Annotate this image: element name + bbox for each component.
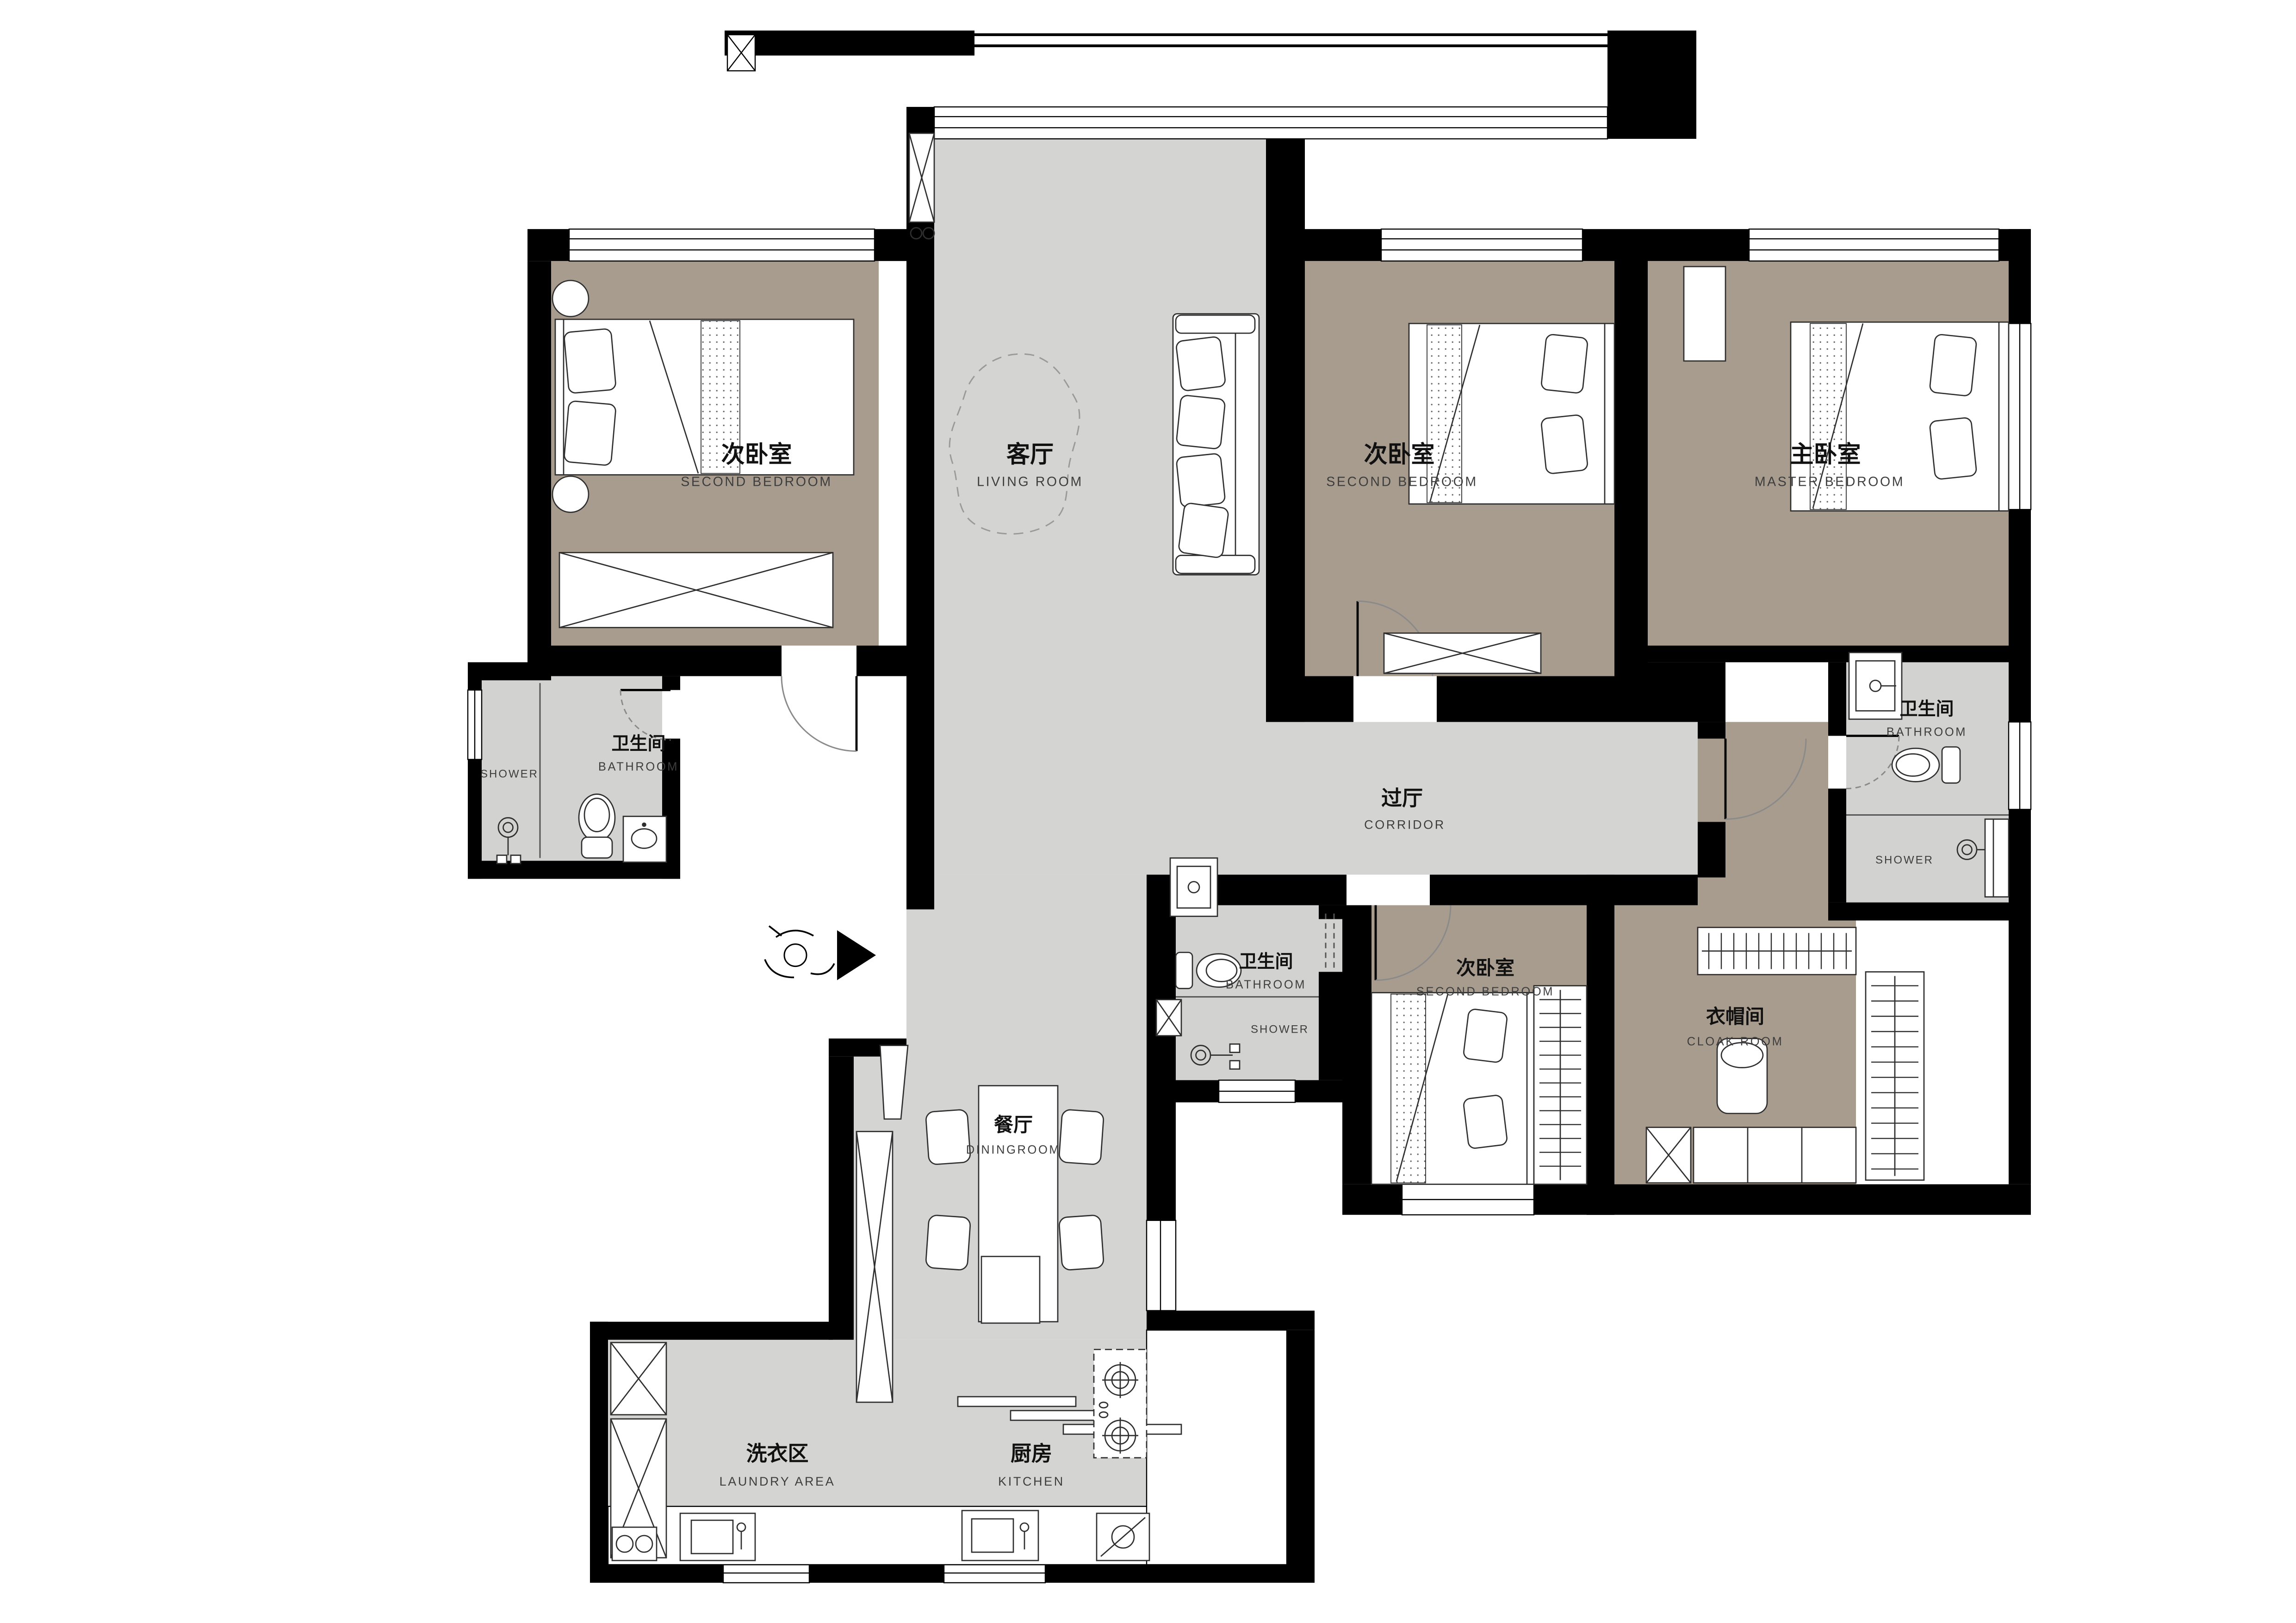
bathroom-center-label-cn: 卫生间 [1239, 952, 1293, 972]
cushion-icon [1176, 336, 1226, 391]
window-dining-east [1147, 1220, 1176, 1311]
hanger-rail-icon [1698, 928, 1856, 975]
living-room-label-en: LIVING ROOM [977, 474, 1083, 489]
stove-icon [1094, 1350, 1147, 1458]
entry-arrow-icon [837, 930, 876, 980]
wardrobe-icon [559, 552, 833, 627]
cushion-icon [1176, 453, 1226, 508]
window-bathroom-right-east [2009, 722, 2031, 809]
tall-cabinet-icon [856, 1132, 893, 1402]
window-second-bedroom-top [1381, 229, 1582, 261]
washing-machine-icon [611, 1343, 666, 1415]
hob-cabinet-icon [612, 1527, 657, 1561]
bed-icon [555, 319, 854, 475]
nightstand-icon [552, 476, 589, 512]
laundry-area-label-en: LAUNDRY AREA [720, 1474, 836, 1488]
chair-icon [925, 1109, 971, 1165]
person-icon [765, 926, 834, 978]
master-bedroom-label-en: MASTER BEDROOM [1755, 474, 1905, 489]
bathroom-right-label-en: BATHROOM [1886, 725, 1967, 738]
window-second-bedroom-bottom [1402, 1184, 1534, 1215]
door-second-bedroom-left [782, 676, 856, 751]
bathroom-center-label-en: BATHROOM [1226, 979, 1306, 991]
hanger-rail-icon [1866, 972, 1924, 1180]
sink-icon [623, 817, 666, 862]
bathroom-left-label-cn: 卫生间 [612, 734, 666, 754]
counter-east [1147, 1330, 1287, 1565]
sink-icon [1849, 652, 1902, 719]
window-kitchen-south-1 [723, 1565, 809, 1583]
window-bathroom-center-south [1219, 1080, 1295, 1103]
oven-icon [1097, 1513, 1149, 1561]
cloak-room-label-cn: 衣帽间 [1706, 1006, 1764, 1028]
window-second-bedroom-left [569, 229, 875, 261]
kitchen-sink-icon [962, 1511, 1038, 1561]
bathroom-center-shower-label: SHOWER [1251, 1023, 1309, 1036]
bed-icon [1371, 993, 1534, 1184]
window-master-bedroom-top [1749, 229, 1999, 261]
nightstand-icon [1684, 266, 1725, 361]
pillow-icon [1930, 334, 1977, 396]
second-bedroom-bottom-label-en: SECOND BEDROOM [1416, 985, 1554, 998]
chair-icon [1059, 1215, 1104, 1270]
washing-machine-icon [1156, 1000, 1181, 1036]
cabinet-icon [1646, 1127, 1856, 1183]
second-bedroom-left-label-cn: 次卧室 [721, 441, 792, 468]
bathroom-right-label-cn: 卫生间 [1900, 699, 1954, 719]
pillow-icon [1463, 1009, 1508, 1063]
pillow-icon [1463, 1095, 1508, 1149]
laundry-area-label-cn: 洗衣区 [746, 1442, 809, 1465]
bathroom-center-floor [1176, 905, 1342, 1080]
master-bedroom-label-cn: 主卧室 [1790, 441, 1861, 468]
corridor-label-cn: 过厅 [1381, 787, 1423, 810]
second-bedroom-top-label-cn: 次卧室 [1364, 441, 1435, 468]
chair-icon [1059, 1109, 1104, 1165]
bathroom-left-label-en: BATHROOM [598, 760, 679, 773]
second-bedroom-left-label-en: SECOND BEDROOM [681, 474, 832, 489]
living-room-label-cn: 客厅 [1006, 441, 1054, 468]
nightstand-icon [552, 280, 589, 316]
sideboard-icon [981, 1257, 1040, 1323]
second-bedroom-bottom-label-cn: 次卧室 [1456, 958, 1514, 979]
stool-icon [1717, 1039, 1767, 1114]
floor-plan-drawing: 次卧室 SECOND BEDROOM 客厅 LIVING ROOM [0, 0, 2296, 1623]
hanger-rail-icon [1534, 986, 1587, 1184]
kitchen-label-cn: 厨房 [1011, 1442, 1052, 1465]
dining-room-label-cn: 餐厅 [994, 1115, 1033, 1136]
window-master-bedroom-east [2009, 323, 2031, 509]
pillow-icon [564, 328, 616, 393]
toilet-icon [579, 794, 615, 858]
pillow-icon [1541, 334, 1588, 394]
laundry-sink-icon [680, 1513, 755, 1561]
toilet-icon [1892, 747, 1960, 783]
dining-room-label-en: DININGROOM [966, 1144, 1061, 1157]
cushion-icon [1176, 395, 1226, 449]
chair-icon [925, 1215, 971, 1270]
sink-icon [1170, 858, 1217, 917]
sofa-icon [1173, 314, 1259, 575]
shower-bench-icon [1985, 819, 2009, 897]
window-kitchen-south-2 [944, 1565, 1045, 1583]
bathroom-left-shower-label: SHOWER [480, 768, 539, 780]
window-balcony [934, 107, 1607, 139]
mattress-fold [1391, 994, 1426, 1183]
cloak-room-label-en: CLOAK ROOM [1687, 1035, 1784, 1048]
pillow-icon [1541, 415, 1588, 474]
window-bathroom-left-west [468, 690, 482, 759]
floor-plan-canvas: 次卧室 SECOND BEDROOM 客厅 LIVING ROOM [0, 0, 2296, 1623]
corridor-floor [906, 722, 1698, 874]
wardrobe-icon [1384, 633, 1541, 673]
pillow-icon [564, 401, 616, 465]
corridor-label-en: CORRIDOR [1364, 818, 1446, 832]
second-bedroom-top-label-en: SECOND BEDROOM [1326, 474, 1477, 489]
cushion-icon [1178, 502, 1229, 558]
room-second-bedroom-left: 次卧室 SECOND BEDROOM [552, 280, 854, 627]
pillow-icon [1930, 417, 1977, 480]
kitchen-label-en: KITCHEN [998, 1474, 1065, 1488]
bathroom-right-shower-label: SHOWER [1875, 854, 1934, 867]
master-vestibule-floor [1698, 722, 1828, 920]
